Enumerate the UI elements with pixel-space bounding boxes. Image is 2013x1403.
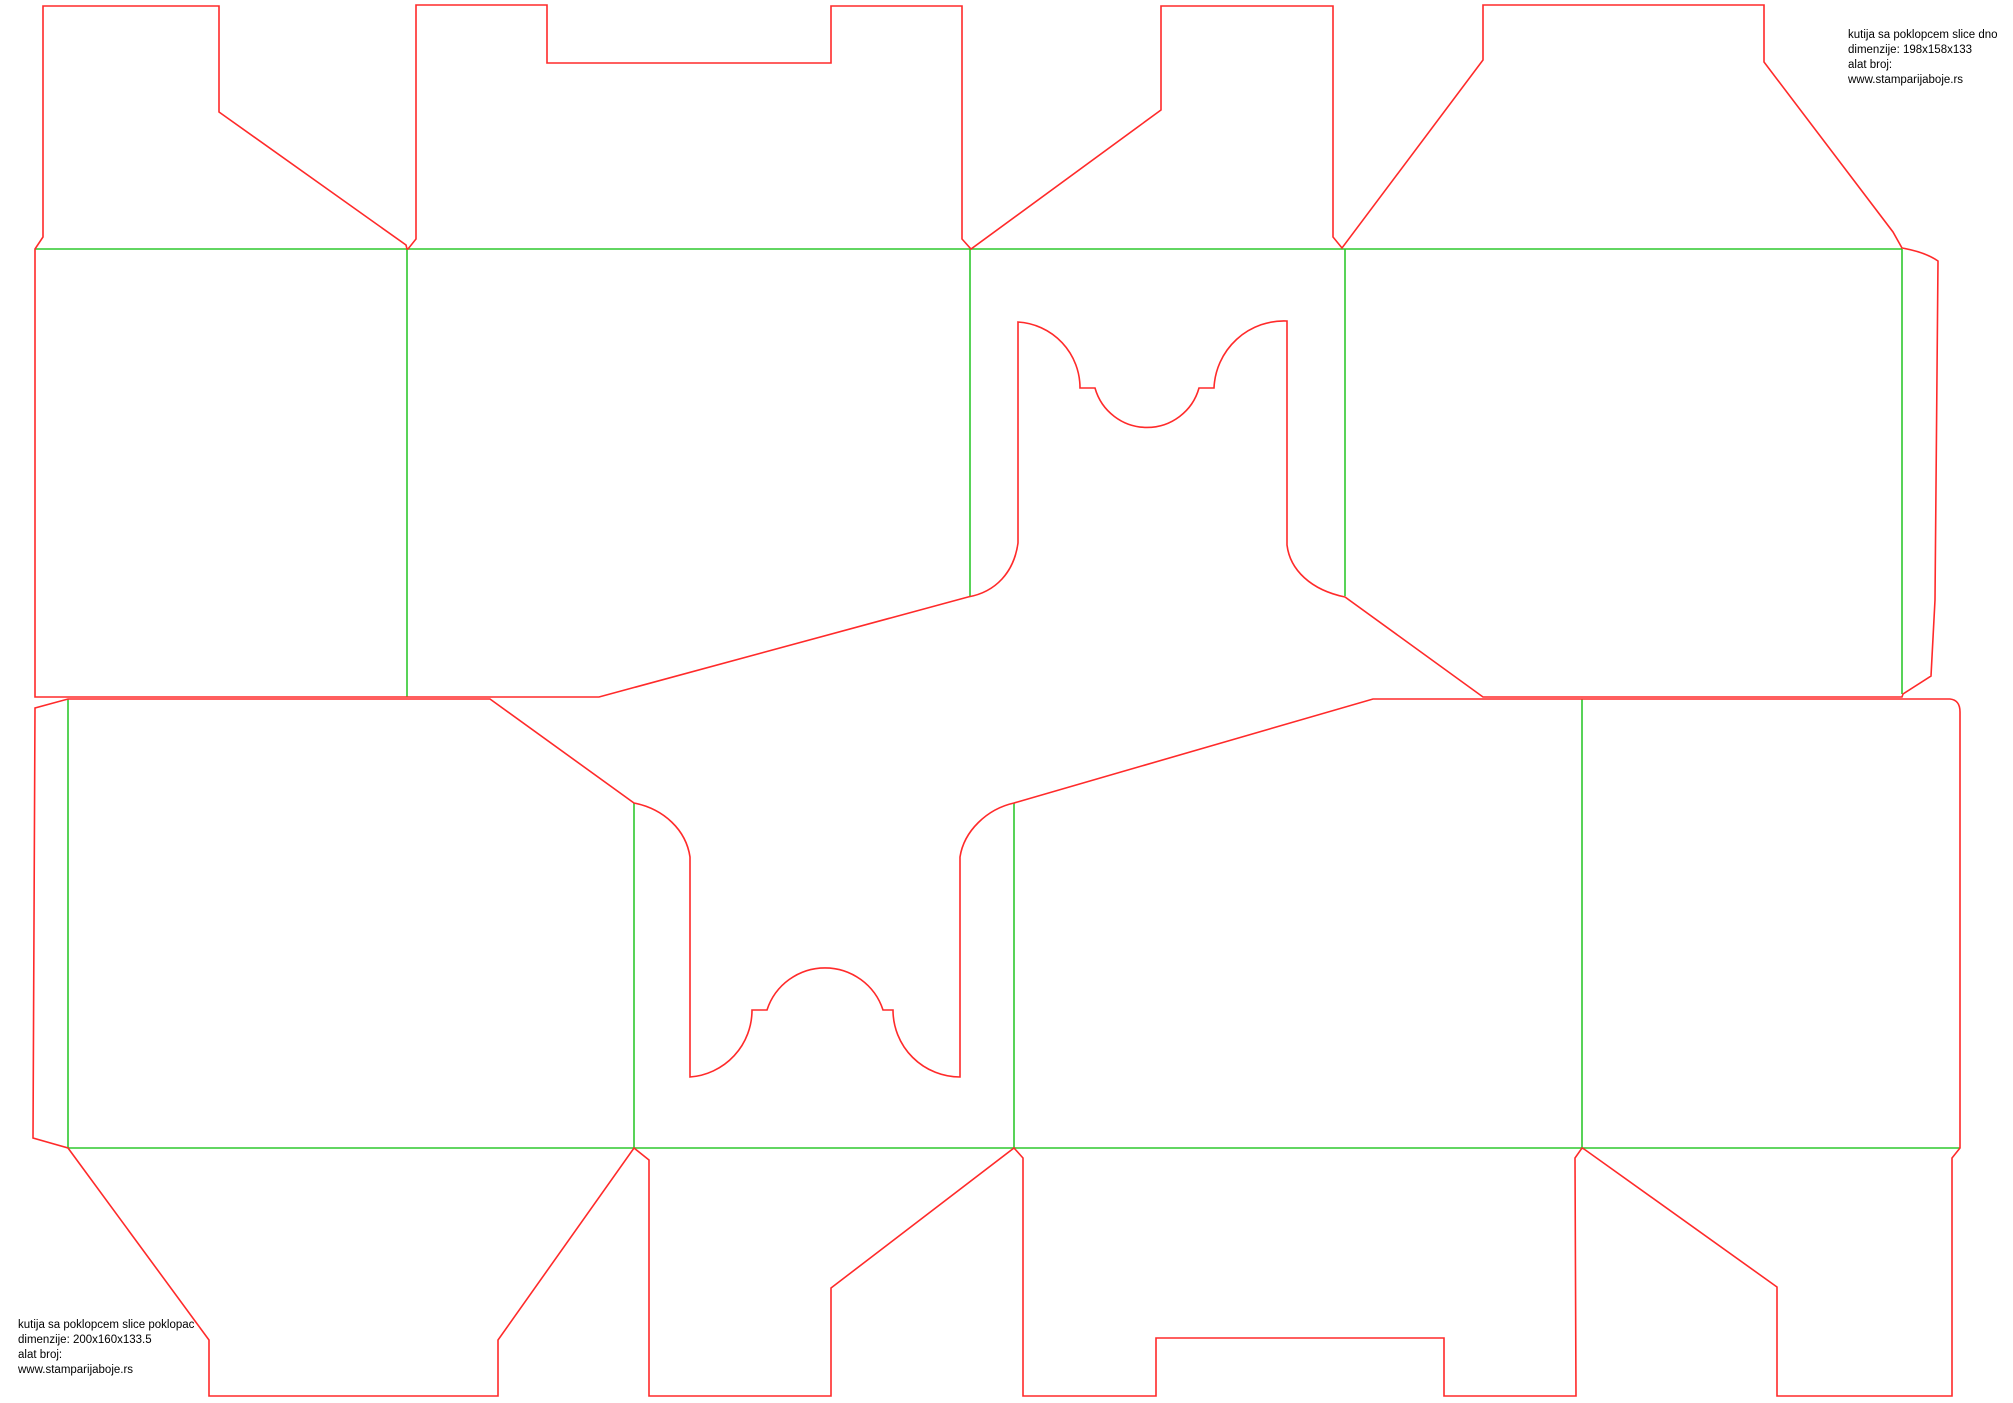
- dieline-canvas: [0, 0, 2013, 1403]
- label-dno: kutija sa poklopcem slice dno dimenzije:…: [1848, 28, 1998, 88]
- cut-line-poklopac: [33, 699, 1960, 1396]
- dieline-drawing-page: kutija sa poklopcem slice dno dimenzije:…: [0, 0, 2013, 1403]
- cut-line-dno: [35, 5, 1938, 697]
- label-poklopac: kutija sa poklopcem slice poklopac dimen…: [18, 1318, 194, 1378]
